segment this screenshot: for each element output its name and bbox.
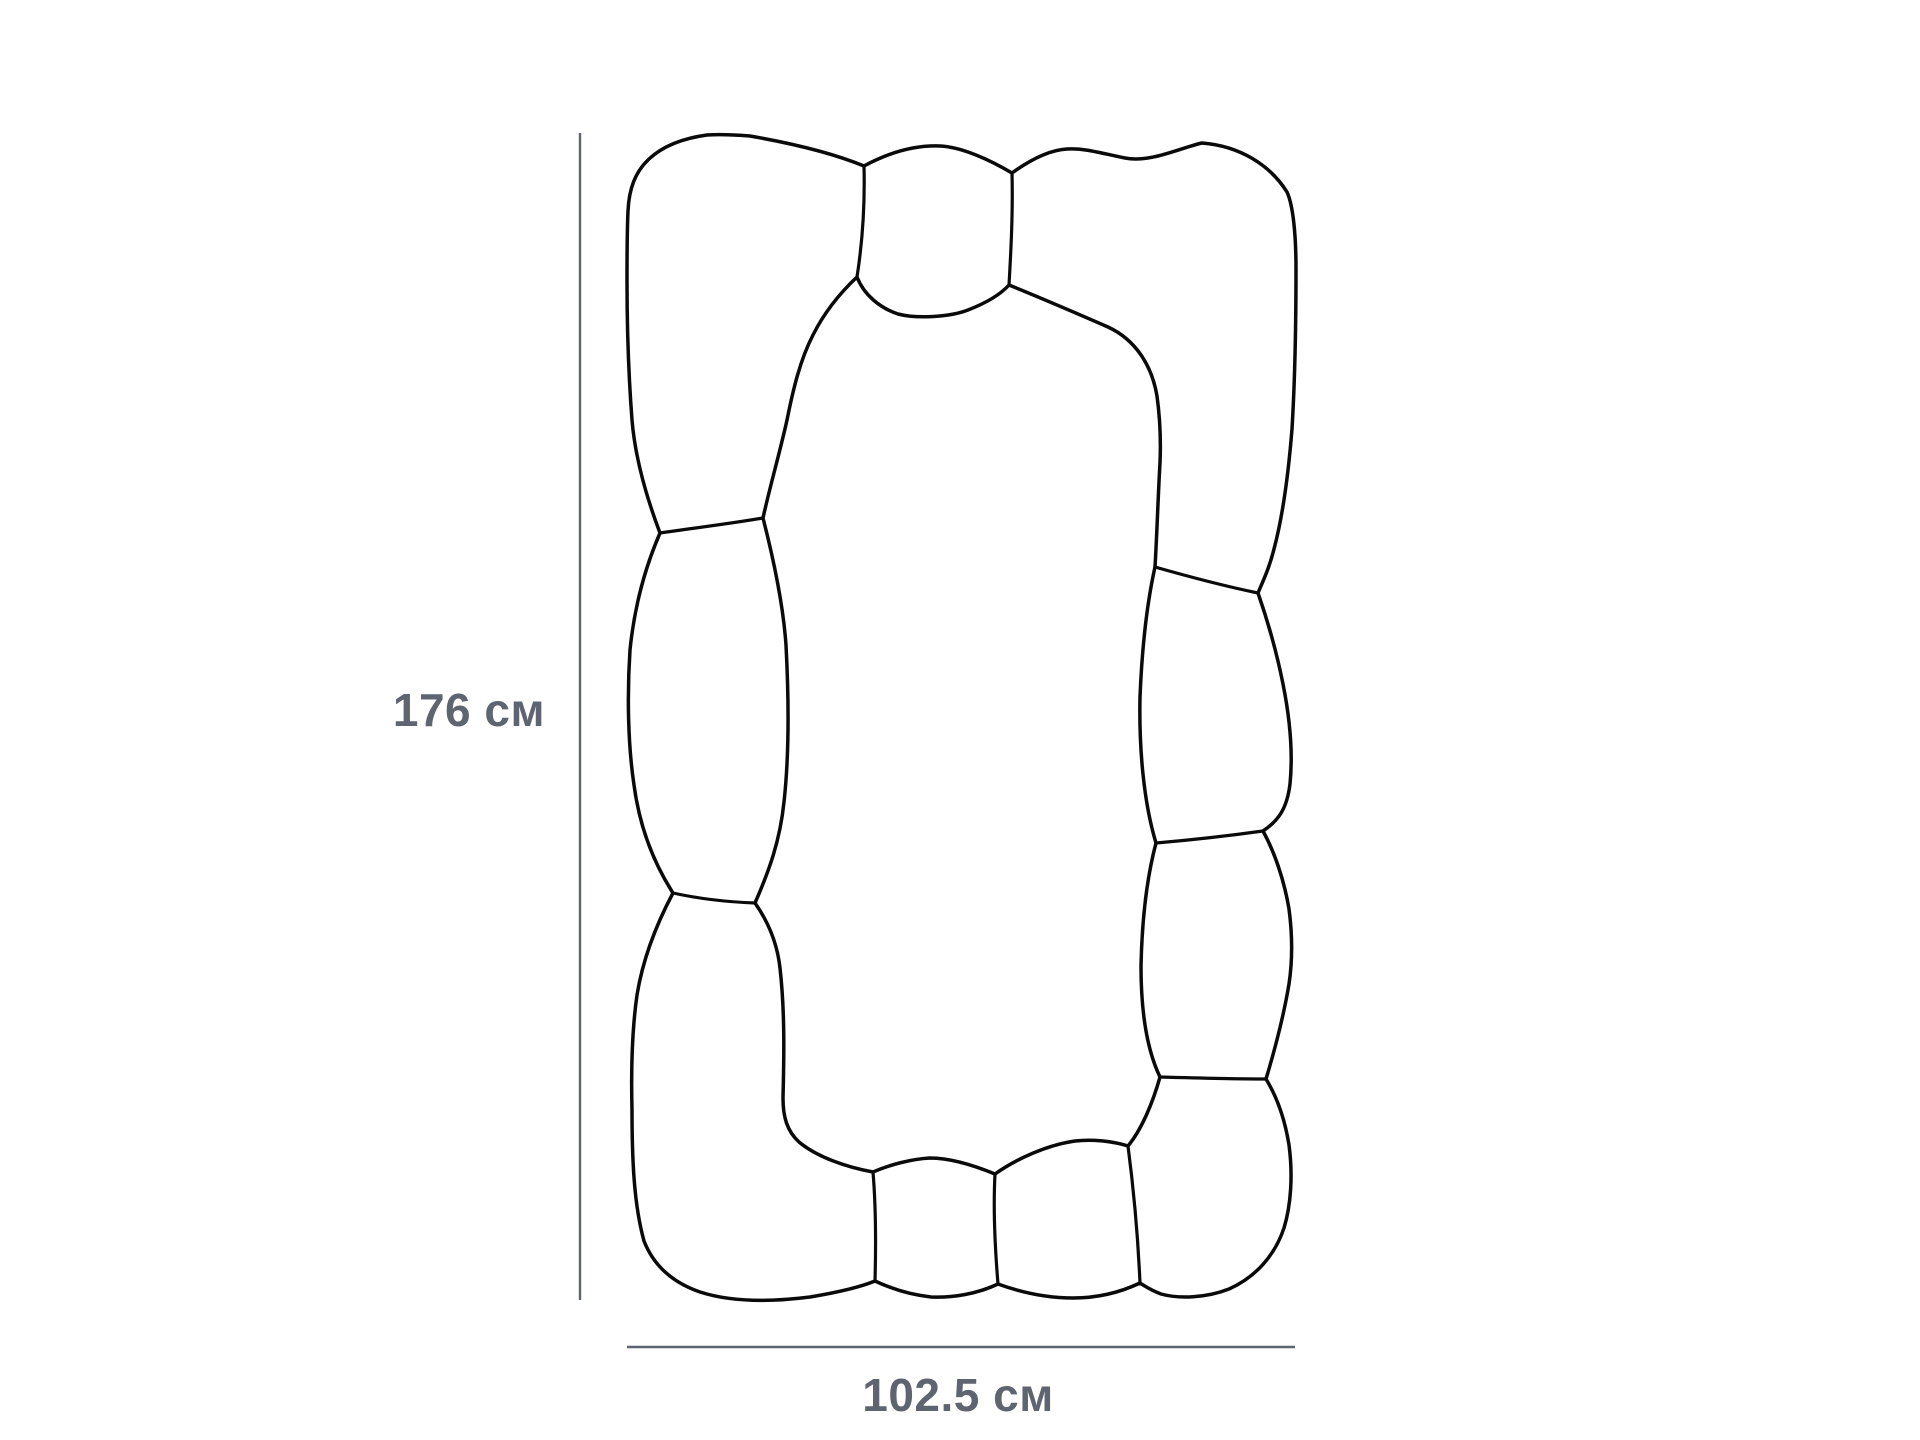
segment-seams: [660, 166, 1266, 1284]
seam-left-lower: [673, 893, 755, 903]
seam-right-middle: [1156, 831, 1263, 843]
mirror-frame-outline: [627, 135, 1296, 1301]
seam-top-right: [1009, 173, 1012, 285]
product-dimensions-page: 176 см 102.5 см: [0, 0, 1920, 1440]
seam-top-left: [857, 166, 864, 277]
width-dimension-label: 102.5 см: [758, 1368, 1158, 1422]
seam-bottom-left: [873, 1172, 876, 1281]
seam-right-lower: [1160, 1077, 1266, 1079]
outer-contour: [627, 135, 1296, 1301]
seam-left-upper: [660, 518, 763, 533]
inner-contour: [755, 277, 1160, 1174]
seam-right-upper: [1155, 567, 1258, 593]
seam-bottom-middle: [994, 1174, 998, 1284]
seam-bottom-right: [1128, 1146, 1140, 1283]
height-dimension-label: 176 см: [245, 683, 545, 737]
